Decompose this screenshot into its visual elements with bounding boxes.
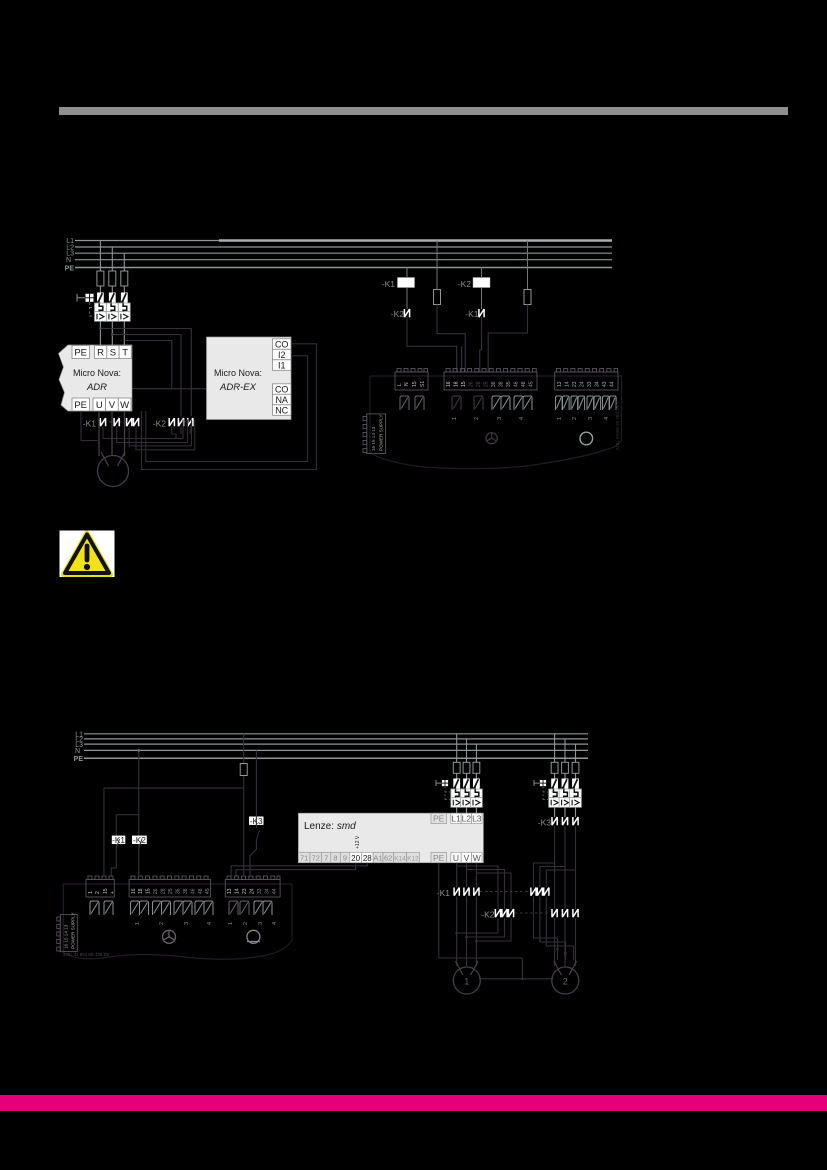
svg-text:R: R: [97, 348, 104, 359]
svg-text:43: 43: [602, 381, 608, 387]
svg-text:36: 36: [176, 888, 182, 894]
svg-text:I1: I1: [278, 360, 286, 370]
svg-text:1: 1: [464, 977, 469, 987]
svg-text:PE: PE: [433, 814, 445, 824]
svg-text:-K2: -K2: [481, 910, 495, 920]
svg-text:2: 2: [159, 922, 165, 925]
svg-text:44: 44: [272, 888, 278, 894]
svg-text:15: 15: [412, 381, 418, 387]
svg-text:4: 4: [207, 922, 213, 925]
svg-text:L3: L3: [472, 814, 482, 824]
svg-text:45: 45: [205, 888, 211, 894]
svg-text:I2: I2: [278, 350, 286, 360]
svg-text:38: 38: [499, 381, 505, 387]
svg-text:1: 1: [135, 922, 141, 925]
svg-text:PE: PE: [74, 400, 87, 411]
svg-text:46: 46: [514, 381, 520, 387]
svg-text:3: 3: [184, 922, 190, 925]
svg-text:16: 16: [131, 888, 137, 894]
svg-text:NA: NA: [275, 395, 288, 405]
svg-text:38: 38: [183, 888, 189, 894]
svg-text:13: 13: [557, 381, 563, 387]
svg-text:-K1: -K1: [83, 419, 97, 429]
svg-text:2: 2: [563, 977, 568, 987]
svg-text:V: V: [109, 400, 116, 411]
svg-text:-K1: -K1: [465, 309, 479, 319]
svg-text:9: 9: [343, 854, 347, 863]
svg-text:33: 33: [587, 381, 593, 387]
svg-text:PE: PE: [65, 266, 75, 273]
svg-text:2: 2: [95, 891, 101, 894]
svg-text:26: 26: [153, 888, 159, 894]
svg-text:15: 15: [146, 888, 152, 894]
svg-text:ADR-EX: ADR-EX: [219, 382, 257, 393]
svg-text:18: 18: [454, 381, 460, 387]
svg-text:-K2: -K2: [153, 419, 167, 429]
svg-text:46: 46: [191, 888, 197, 894]
svg-text:N: N: [404, 382, 410, 386]
svg-text:33: 33: [257, 888, 263, 894]
svg-text:N: N: [66, 257, 71, 264]
svg-text:35: 35: [506, 381, 512, 387]
svg-text:72: 72: [312, 854, 320, 863]
svg-text:2: 2: [572, 417, 578, 420]
svg-text:24: 24: [250, 888, 256, 894]
svg-text:23: 23: [242, 888, 248, 894]
svg-text:1: 1: [228, 922, 234, 925]
svg-text:V: V: [464, 853, 470, 863]
svg-text:POWER SUPPLY: POWER SUPPLY: [71, 913, 76, 949]
svg-text:NC: NC: [275, 405, 288, 415]
svg-text:14: 14: [565, 381, 571, 387]
svg-text:45: 45: [529, 381, 535, 387]
svg-text:+12 V: +12 V: [355, 835, 361, 849]
svg-text:62: 62: [384, 854, 392, 863]
svg-text:2: 2: [243, 922, 249, 925]
svg-text:27BL d1 B63 BB 43B DE: 27BL d1 B63 BB 43B DE: [63, 952, 110, 957]
svg-text:L2: L2: [462, 814, 472, 824]
svg-text:T: T: [122, 348, 128, 359]
svg-text:4: 4: [272, 922, 278, 925]
svg-text:4: 4: [604, 417, 610, 420]
svg-text:-K2: -K2: [391, 309, 405, 319]
svg-text:U: U: [96, 400, 103, 411]
svg-text:28: 28: [161, 888, 167, 894]
svg-text:48: 48: [521, 381, 527, 387]
svg-text:16 15 14 13: 16 15 14 13: [64, 924, 69, 949]
svg-text:20: 20: [351, 854, 360, 863]
svg-text:Micro Nova:: Micro Nova:: [73, 368, 121, 378]
svg-text:K14: K14: [394, 856, 406, 863]
svg-text:16: 16: [446, 381, 452, 387]
svg-text:48: 48: [198, 888, 204, 894]
svg-text:L1: L1: [451, 814, 461, 824]
svg-text:W: W: [120, 400, 129, 411]
svg-text:25: 25: [484, 381, 490, 387]
svg-text:-K2: -K2: [133, 836, 146, 845]
svg-text:-K2: -K2: [458, 279, 472, 289]
svg-text:U: U: [453, 853, 459, 863]
svg-text:W: W: [473, 853, 481, 863]
svg-text:+: +: [110, 891, 116, 894]
svg-text:8: 8: [333, 854, 337, 863]
svg-text:18: 18: [138, 888, 144, 894]
svg-text:16 15 14 13: 16 15 14 13: [371, 426, 376, 451]
svg-text:34: 34: [265, 888, 271, 894]
svg-text:N: N: [75, 748, 80, 755]
svg-text:1: 1: [88, 891, 94, 894]
svg-text:PE: PE: [74, 756, 84, 763]
svg-text:1: 1: [452, 417, 458, 420]
svg-text:4: 4: [519, 417, 525, 420]
svg-text:CO: CO: [275, 339, 289, 349]
svg-text:Lenze: smd: Lenze: smd: [304, 821, 356, 832]
svg-text:24: 24: [580, 381, 586, 387]
svg-text:-K3: -K3: [538, 818, 552, 828]
svg-text:PE: PE: [74, 348, 87, 359]
svg-text:28: 28: [363, 854, 372, 863]
svg-text:71: 71: [300, 854, 308, 863]
svg-text:15: 15: [461, 381, 467, 387]
svg-text:14: 14: [235, 888, 241, 894]
svg-text:15: 15: [103, 888, 109, 894]
svg-text:34: 34: [595, 381, 601, 387]
svg-text:S1: S1: [420, 381, 426, 387]
svg-text:28: 28: [476, 381, 482, 387]
svg-text:K12: K12: [407, 856, 419, 863]
svg-text:26: 26: [469, 381, 475, 387]
svg-text:13: 13: [227, 888, 233, 894]
svg-text:3: 3: [497, 417, 503, 420]
svg-text:1: 1: [557, 417, 563, 420]
svg-text:3: 3: [258, 922, 264, 925]
svg-text:POWER SUPPLY: POWER SUPPLY: [379, 415, 384, 451]
svg-text:Micro Nova:: Micro Nova:: [214, 368, 262, 378]
svg-text:A1: A1: [373, 854, 382, 863]
svg-text:ADR: ADR: [86, 382, 107, 393]
svg-text:25: 25: [168, 888, 174, 894]
svg-text:27BL 3456B 0B 2BD DEV: 27BL 3456B 0B 2BD DEV: [615, 402, 620, 450]
svg-text:CO: CO: [275, 384, 289, 394]
svg-text:S: S: [110, 348, 116, 359]
svg-text:44: 44: [610, 381, 616, 387]
svg-text:-K1: -K1: [382, 279, 396, 289]
svg-text:36: 36: [491, 381, 497, 387]
svg-text:23: 23: [572, 381, 578, 387]
svg-text:PE: PE: [433, 853, 445, 863]
svg-text:L: L: [397, 383, 403, 386]
svg-text:2: 2: [474, 417, 480, 420]
svg-text:7: 7: [324, 854, 328, 863]
svg-text:3: 3: [588, 417, 594, 420]
